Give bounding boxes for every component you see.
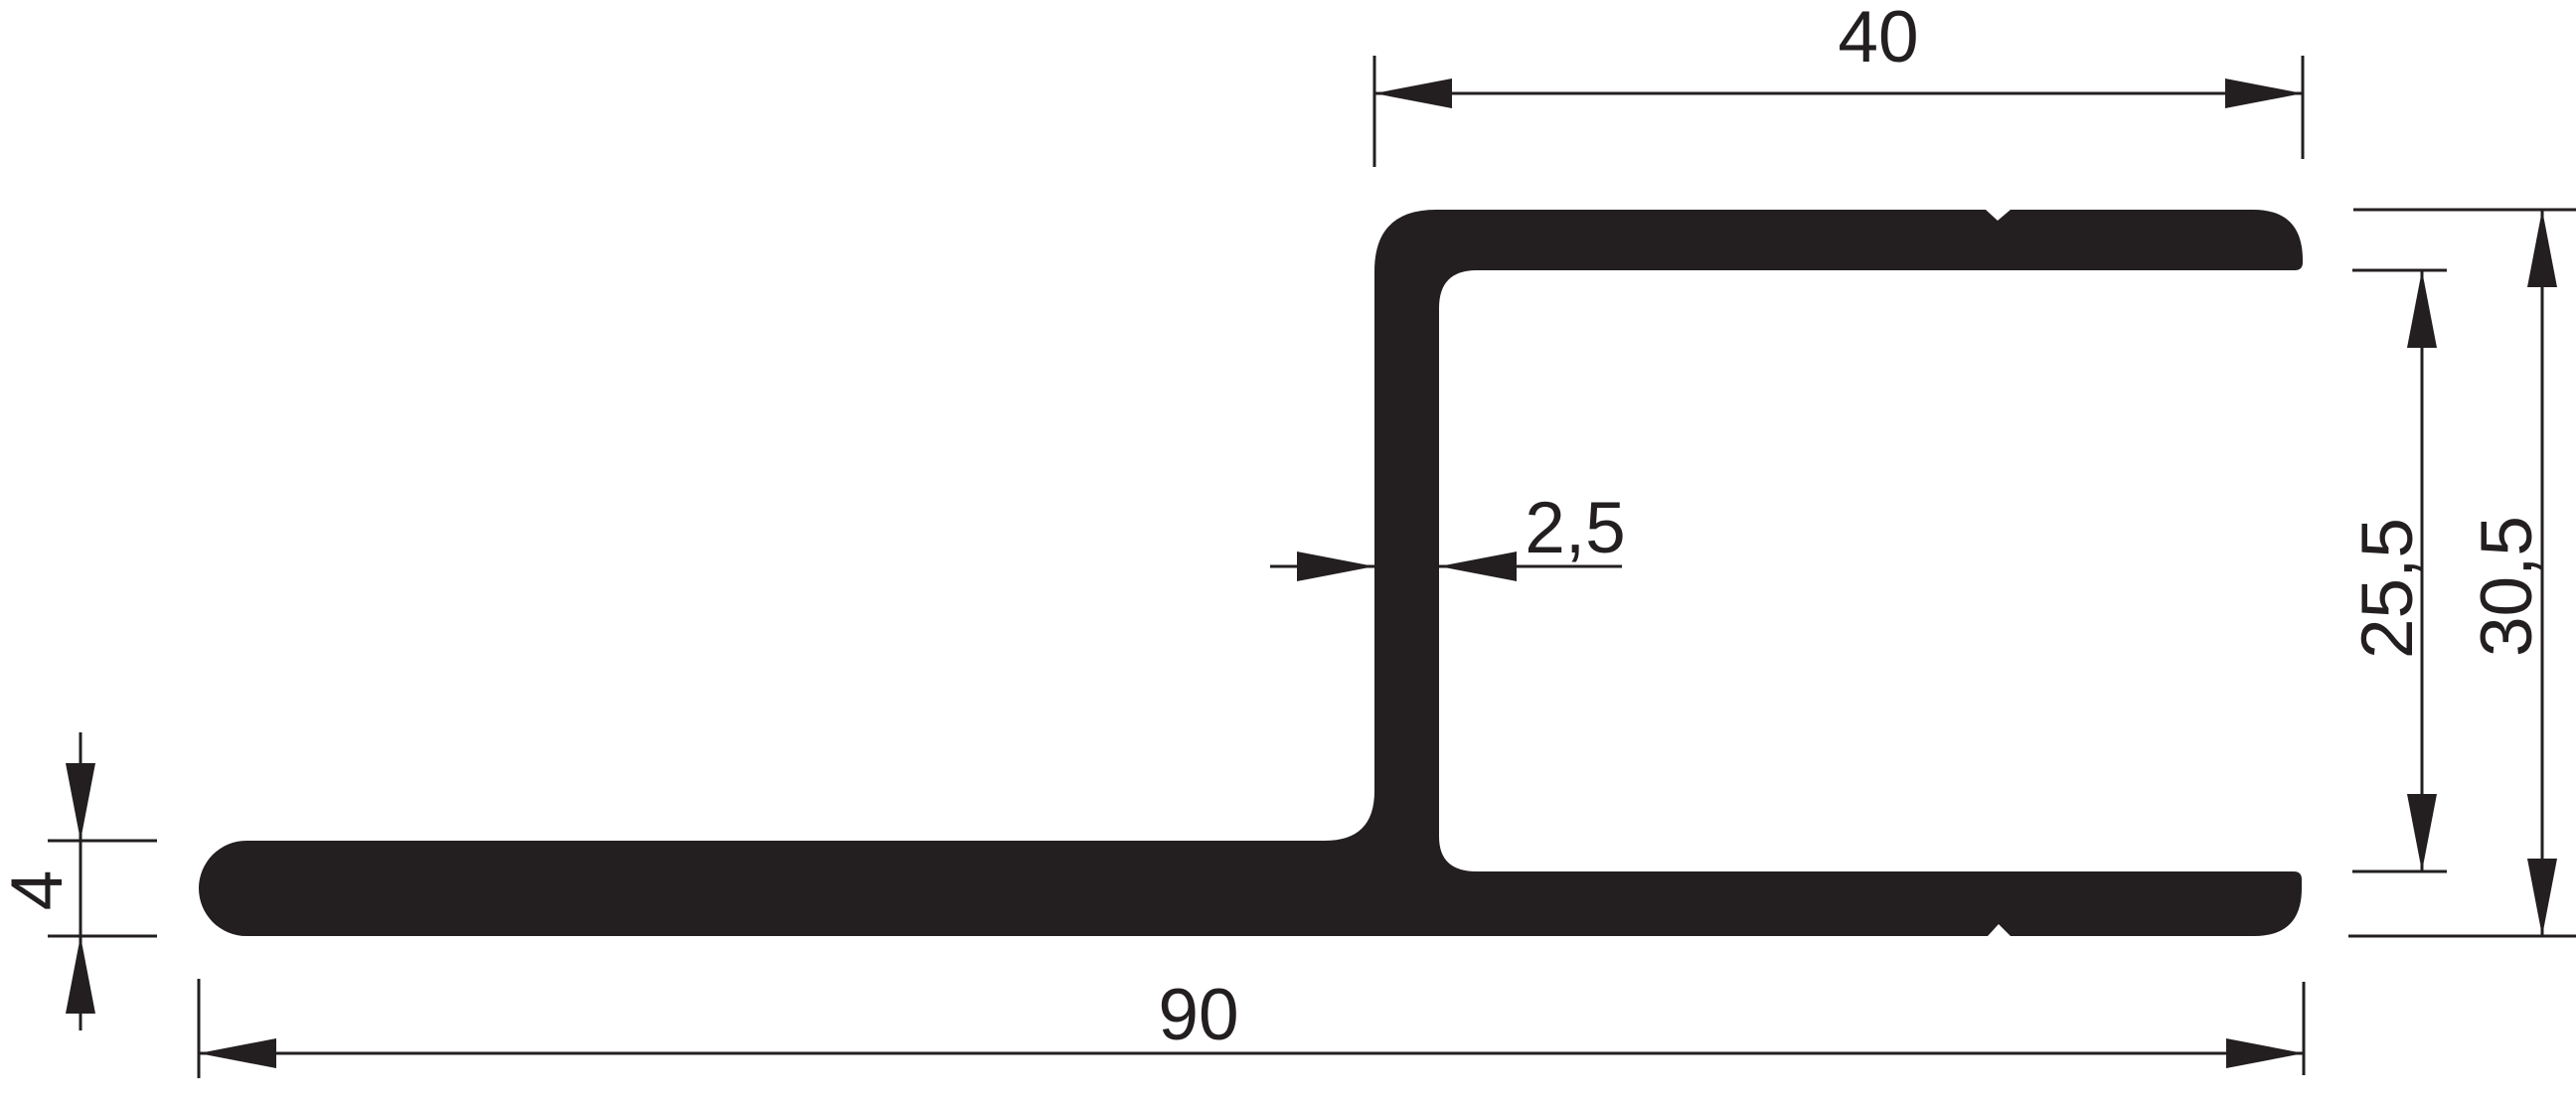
arrowhead-right bbox=[2226, 1038, 2304, 1068]
arrowhead-left bbox=[1439, 552, 1517, 581]
dim-base-width: 90 bbox=[199, 975, 2304, 1078]
arrowhead-left bbox=[199, 1038, 276, 1068]
arrowhead-right bbox=[2225, 79, 2303, 108]
dim-label-base-thickness: 4 bbox=[0, 870, 78, 911]
arrowhead-up bbox=[2407, 270, 2437, 348]
profile-outline bbox=[199, 210, 2303, 936]
arrowhead-left bbox=[1374, 79, 1452, 108]
arrowhead-down bbox=[66, 763, 95, 841]
dim-label-inner-height: 25,5 bbox=[2347, 518, 2428, 659]
dim-flange-width: 40 bbox=[1374, 0, 2303, 167]
arrowhead-up bbox=[2527, 210, 2557, 287]
dim-base-thickness: 4 bbox=[0, 732, 157, 1030]
dim-label-flange-width: 40 bbox=[1838, 0, 1918, 78]
dim-inner-height: 25,5 bbox=[2347, 270, 2447, 871]
arrowhead-up bbox=[66, 936, 95, 1014]
dim-label-overall-height: 30,5 bbox=[2467, 516, 2547, 657]
dim-wall-thickness: 2,5 bbox=[1270, 488, 1626, 581]
dim-label-wall-thickness: 2,5 bbox=[1525, 488, 1625, 568]
technical-drawing: 40 2,5 25,5 30,5 4 bbox=[0, 0, 2576, 1105]
arrowhead-down bbox=[2407, 794, 2437, 871]
dim-label-base-width: 90 bbox=[1158, 975, 1238, 1055]
arrowhead-right bbox=[1297, 552, 1374, 581]
drawing-stage: 40 2,5 25,5 30,5 4 bbox=[0, 0, 2576, 1105]
arrowhead-down bbox=[2527, 859, 2557, 936]
